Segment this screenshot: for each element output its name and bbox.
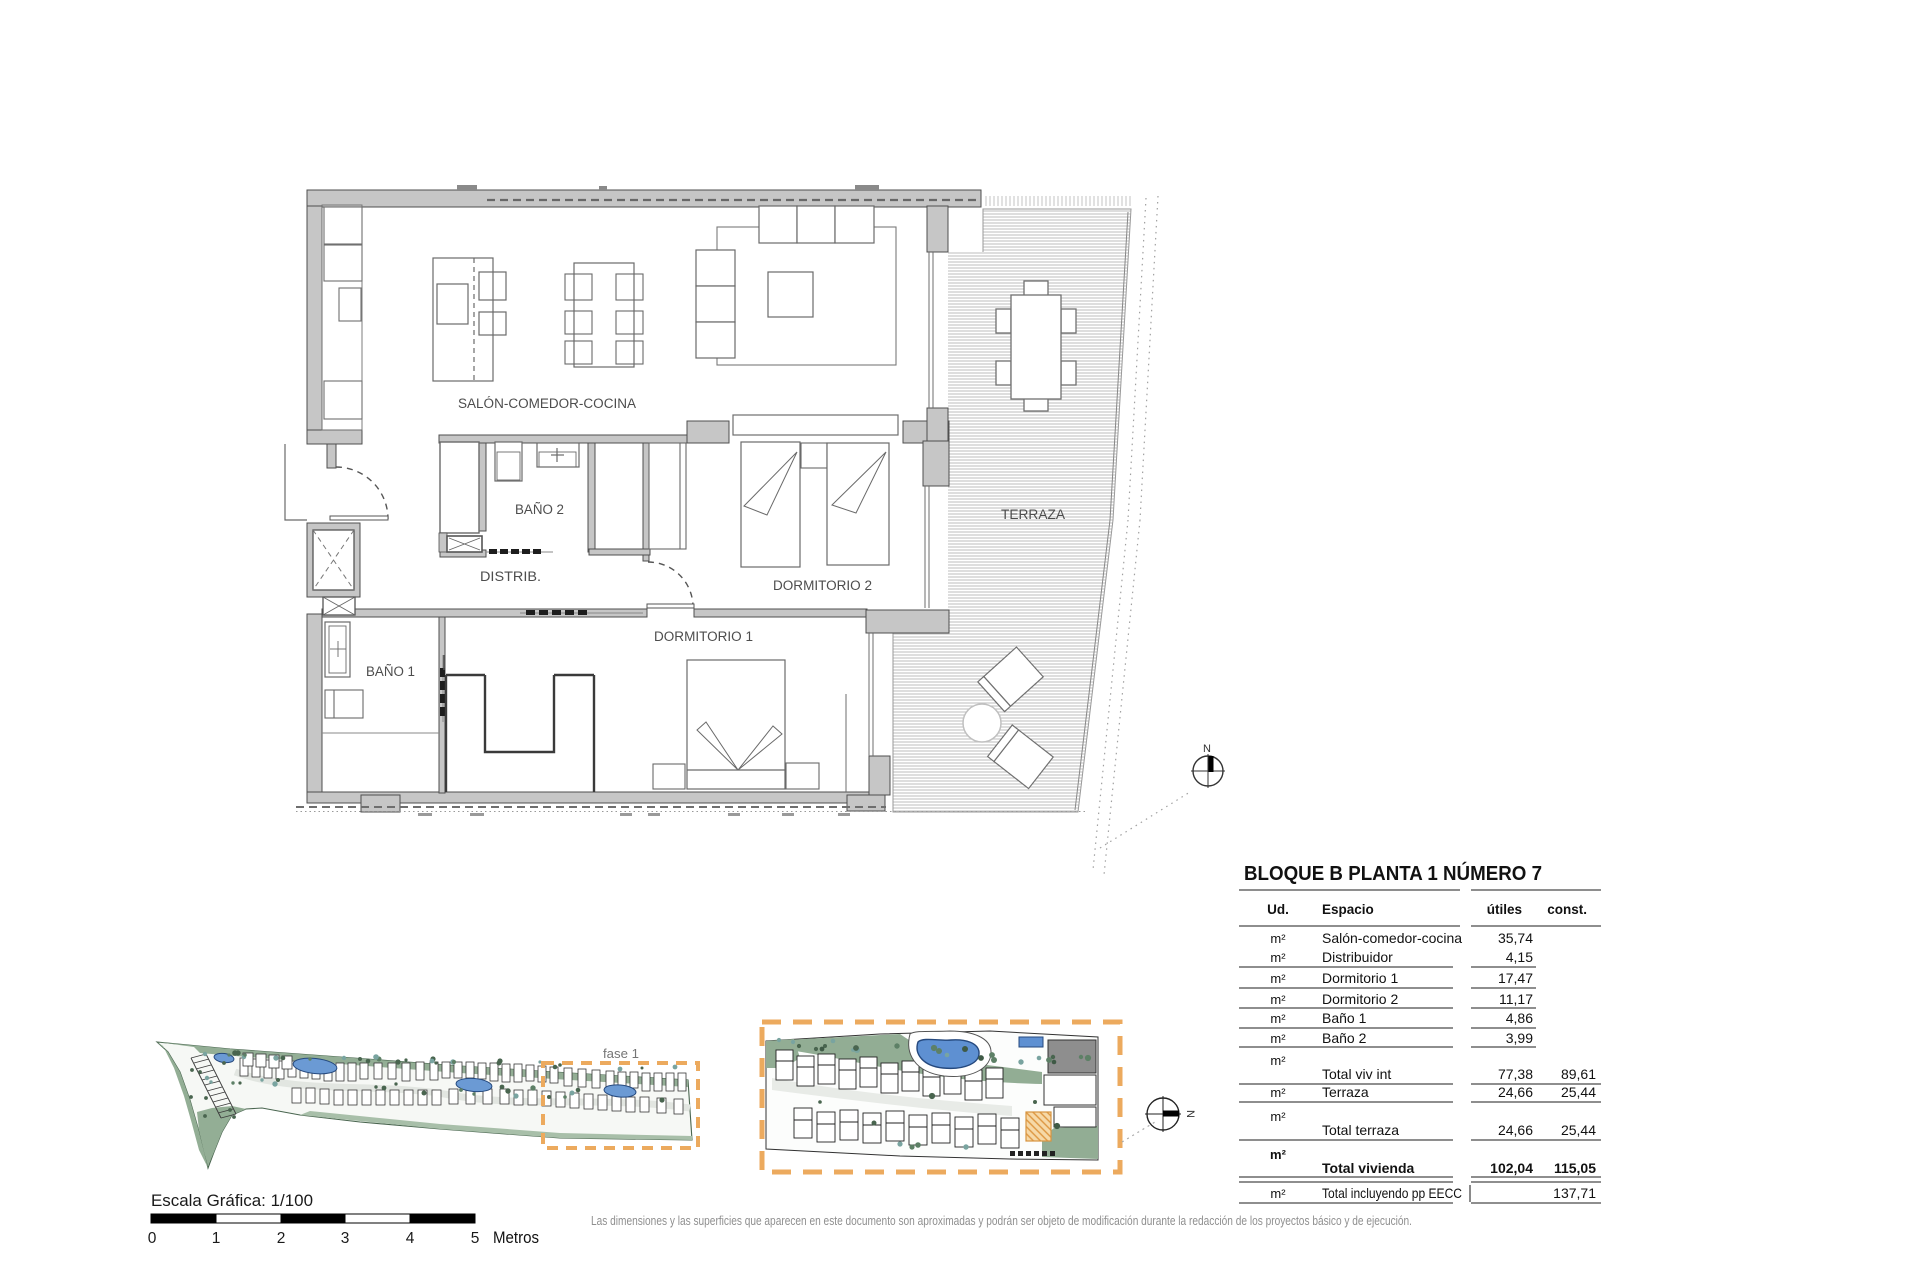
svg-text:BAÑO 1: BAÑO 1 [366,664,415,679]
svg-text:Distribuidor: Distribuidor [1322,949,1393,965]
svg-text:m²: m² [1270,950,1286,965]
svg-text:fase 1: fase 1 [603,1046,639,1061]
svg-text:N: N [1184,1110,1196,1118]
svg-text:BLOQUE B PLANTA 1 NÚMERO 7: BLOQUE B PLANTA 1 NÚMERO 7 [1244,861,1542,885]
svg-text:m²: m² [1270,1085,1286,1100]
svg-text:Espacio: Espacio [1322,902,1374,917]
svg-text:m²: m² [1270,931,1286,946]
svg-text:m²: m² [1270,1186,1286,1201]
svg-text:Las dimensiones y las superfic: Las dimensiones y las superficies que ap… [591,1214,1412,1228]
svg-text:102,04: 102,04 [1490,1160,1533,1176]
svg-text:0: 0 [148,1230,157,1247]
svg-text:3,99: 3,99 [1506,1030,1533,1046]
svg-text:5: 5 [471,1230,480,1247]
svg-text:Total vivienda: Total vivienda [1322,1160,1415,1176]
svg-text:TERRAZA: TERRAZA [1001,507,1065,522]
svg-text:m²: m² [1270,992,1286,1007]
svg-text:89,61: 89,61 [1561,1066,1596,1082]
svg-text:1: 1 [212,1230,221,1247]
svg-text:4,15: 4,15 [1506,949,1533,965]
svg-text:Escala Gráfica: 1/100: Escala Gráfica: 1/100 [151,1192,313,1210]
svg-text:m²: m² [1270,1053,1286,1068]
svg-text:Dormitorio 2: Dormitorio 2 [1322,991,1398,1007]
svg-text:35,74: 35,74 [1498,930,1533,946]
svg-text:Total incluyendo pp EECC: Total incluyendo pp EECC [1322,1185,1462,1201]
svg-text:m²: m² [1270,1147,1287,1162]
svg-text:137,71: 137,71 [1553,1185,1596,1201]
svg-text:115,05: 115,05 [1554,1160,1596,1176]
svg-text:DORMITORIO 2: DORMITORIO 2 [773,578,872,593]
svg-text:útiles: útiles [1487,902,1522,917]
svg-text:Total terraza: Total terraza [1322,1122,1399,1138]
svg-text:N: N [1203,743,1211,755]
svg-text:Terraza: Terraza [1322,1084,1369,1100]
svg-text:24,66: 24,66 [1498,1084,1533,1100]
svg-text:Baño 2: Baño 2 [1322,1030,1367,1046]
svg-text:Metros: Metros [493,1228,539,1247]
svg-text:77,38: 77,38 [1498,1066,1533,1082]
svg-text:const.: const. [1547,902,1587,917]
svg-text:17,47: 17,47 [1498,970,1533,986]
svg-text:25,44: 25,44 [1561,1122,1596,1138]
svg-text:25,44: 25,44 [1561,1084,1596,1100]
svg-text:m²: m² [1270,1109,1286,1124]
svg-text:m²: m² [1270,1031,1286,1046]
svg-text:Total viv int: Total viv int [1322,1066,1391,1082]
svg-text:Baño 1: Baño 1 [1322,1010,1367,1026]
svg-text:DISTRIB.: DISTRIB. [480,569,541,584]
svg-text:DORMITORIO 1: DORMITORIO 1 [654,629,753,644]
svg-text:Salón-comedor-cocina: Salón-comedor-cocina [1322,930,1462,946]
svg-text:BAÑO 2: BAÑO 2 [515,502,564,517]
svg-text:SALÓN-COMEDOR-COCINA: SALÓN-COMEDOR-COCINA [458,396,636,411]
svg-text:m²: m² [1270,1011,1286,1026]
svg-text:Ud.: Ud. [1267,902,1289,917]
svg-text:m²: m² [1270,971,1286,986]
svg-text:11,17: 11,17 [1499,991,1533,1007]
svg-text:3: 3 [341,1230,350,1247]
svg-text:4,86: 4,86 [1506,1010,1533,1026]
svg-text:Dormitorio 1: Dormitorio 1 [1322,970,1398,986]
svg-text:2: 2 [277,1230,286,1247]
svg-text:4: 4 [406,1230,415,1247]
svg-text:24,66: 24,66 [1498,1122,1533,1138]
